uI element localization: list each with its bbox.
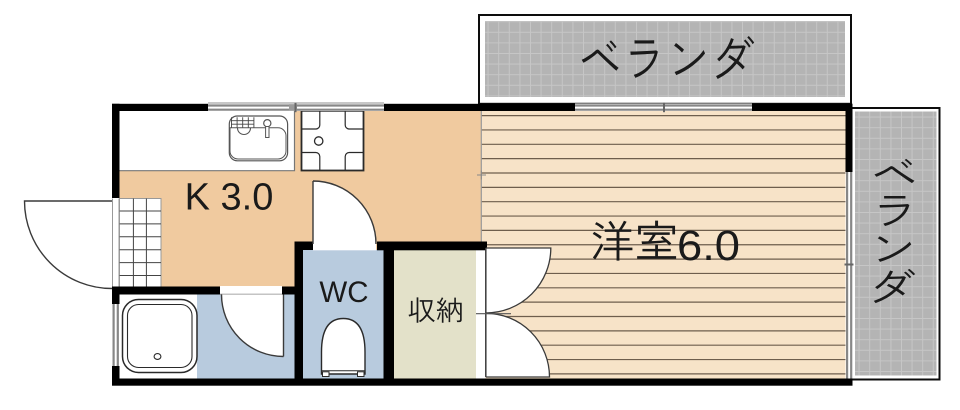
svg-text:6.0: 6.0 [677,222,740,269]
svg-text:WC: WC [319,276,368,309]
svg-text:K 3.0: K 3.0 [185,177,274,219]
